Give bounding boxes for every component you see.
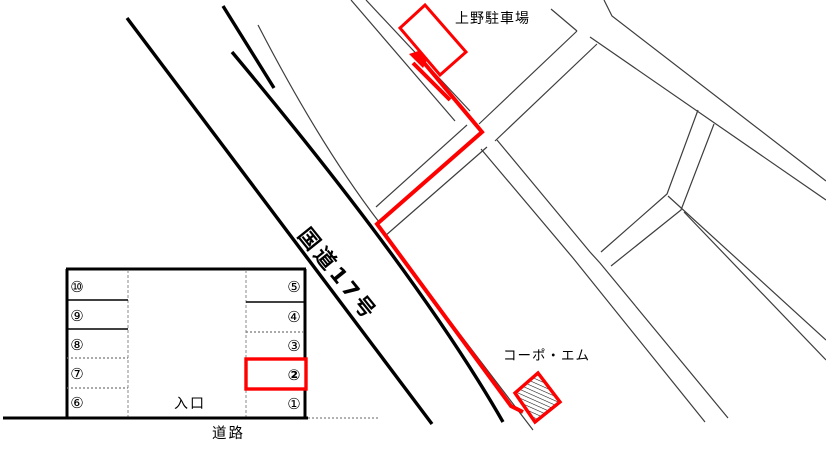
route17-median-segment — [223, 6, 274, 88]
stall-number-7: ⑦ — [68, 365, 86, 383]
avenue-lower-edge — [590, 37, 826, 200]
guidance-route — [377, 46, 523, 412]
building-name-label: コーポ・エム — [503, 349, 590, 364]
street-top-stub — [551, 9, 577, 31]
street-sw-corridor-edge — [376, 125, 467, 207]
street-g-edge1 — [601, 110, 698, 252]
parking-name-label: 上野駐車場 — [455, 12, 530, 27]
stall-number-9: ⑨ — [68, 307, 86, 325]
street-se-edge1 — [668, 196, 826, 340]
street-network — [258, 0, 826, 430]
street-s1-edge2 — [481, 149, 705, 422]
street-se-edge2 — [684, 212, 826, 360]
stall-number-4: ④ — [285, 308, 303, 326]
stall-number-5: ⑤ — [285, 278, 303, 296]
parking-access-map: 上野駐車場 国道17号 コーポ・エム 入口 道路 ⑩ ⑨ ⑧ ⑦ ⑥ ⑤ ④ ③… — [0, 0, 826, 450]
stall-number-3: ③ — [285, 337, 303, 355]
stall-number-1: ① — [285, 395, 303, 413]
street-corner-edge — [385, 147, 533, 430]
route-line — [377, 58, 523, 412]
avenue-upper-edge — [604, 0, 826, 181]
stall-number-8: ⑧ — [68, 336, 86, 354]
entrance-label: 入口 — [174, 397, 206, 412]
stall-number-6: ⑥ — [68, 394, 86, 412]
map-linework — [0, 0, 826, 450]
road-label: 道路 — [212, 427, 245, 443]
stall-number-2-highlighted: ② — [285, 366, 303, 384]
street-ne-right-edge — [495, 44, 597, 141]
stall-number-10: ⑩ — [68, 278, 86, 296]
street-g-edge2 — [611, 124, 714, 266]
street-curve-west — [258, 25, 379, 222]
